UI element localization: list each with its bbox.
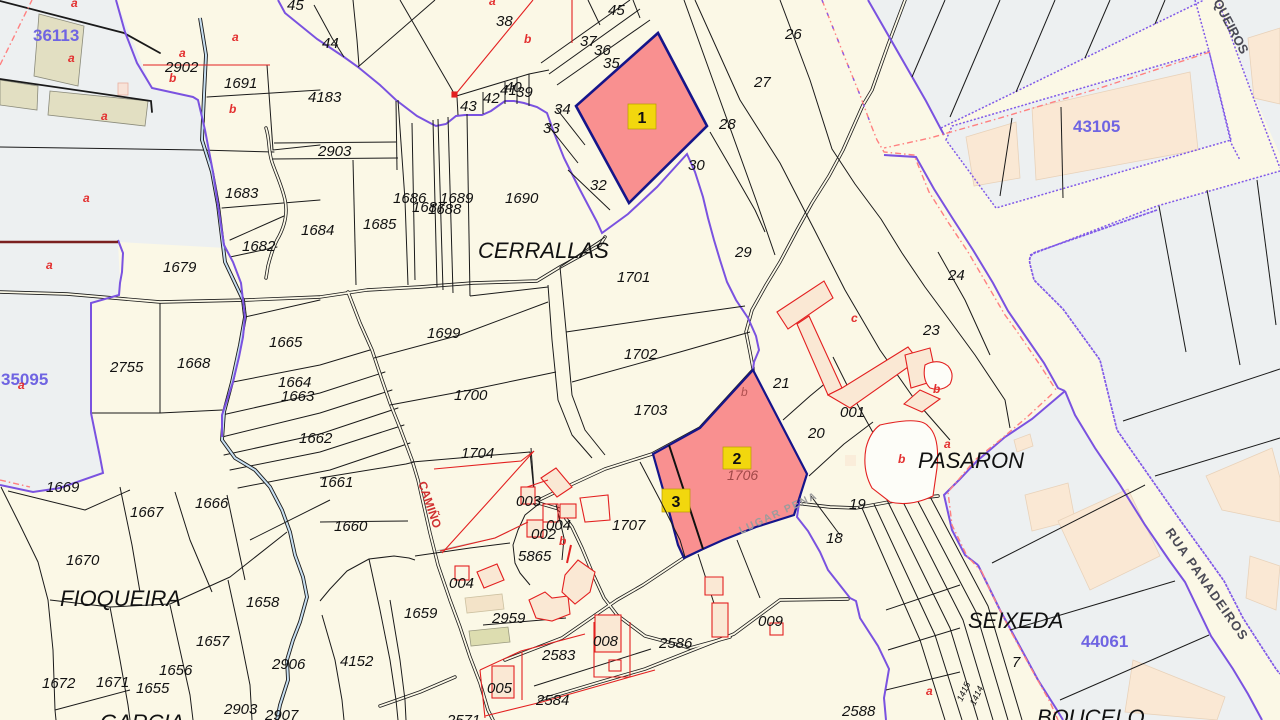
svg-text:36113: 36113 [33,26,79,45]
svg-text:2755: 2755 [109,359,144,376]
svg-text:45: 45 [608,2,625,19]
svg-text:BOUCELO: BOUCELO [1037,705,1145,720]
svg-text:1: 1 [638,110,647,127]
svg-text:002: 002 [531,526,557,543]
svg-text:FIOQUEIRA: FIOQUEIRA [60,586,181,611]
svg-text:4152: 4152 [340,653,374,670]
svg-text:43105: 43105 [1073,117,1120,136]
svg-text:24: 24 [947,267,965,284]
svg-text:5865: 5865 [518,548,552,565]
svg-text:1659: 1659 [404,605,438,622]
svg-text:b: b [933,382,940,396]
svg-text:1657: 1657 [196,633,230,650]
svg-text:29: 29 [734,244,752,261]
svg-text:2584: 2584 [535,692,569,709]
svg-text:b: b [169,71,176,85]
svg-text:1662: 1662 [299,430,333,447]
svg-text:1701: 1701 [617,269,650,286]
svg-text:35: 35 [603,55,620,72]
svg-text:1683: 1683 [225,185,259,202]
svg-text:1685: 1685 [363,216,397,233]
svg-text:45: 45 [287,0,304,14]
svg-text:1669: 1669 [46,479,80,496]
svg-text:008: 008 [593,633,619,650]
svg-text:a: a [101,109,108,123]
svg-text:32: 32 [590,177,607,194]
svg-text:a: a [489,0,496,8]
svg-text:44: 44 [322,35,339,52]
svg-text:1691: 1691 [224,75,257,92]
svg-text:1684: 1684 [301,222,334,239]
svg-text:b: b [229,102,236,116]
svg-text:1656: 1656 [159,662,193,679]
svg-text:1699: 1699 [427,325,461,342]
svg-text:SEIXEDA: SEIXEDA [968,608,1063,633]
svg-text:44061: 44061 [1081,632,1128,651]
svg-text:1700: 1700 [454,387,488,404]
svg-text:a: a [71,0,78,10]
svg-text:38: 38 [496,13,513,30]
svg-text:21: 21 [772,375,790,392]
svg-text:28: 28 [718,116,736,133]
svg-text:a: a [18,378,25,392]
svg-text:42: 42 [483,90,500,107]
svg-text:27: 27 [753,74,771,91]
svg-text:1658: 1658 [246,594,280,611]
svg-text:1706: 1706 [727,467,758,483]
svg-text:20: 20 [807,425,825,442]
svg-text:3: 3 [672,494,681,511]
svg-text:b: b [559,534,566,548]
svg-text:33: 33 [543,120,560,137]
svg-text:2: 2 [733,451,742,468]
svg-text:1663: 1663 [281,388,315,405]
svg-text:PASARON: PASARON [918,448,1024,473]
svg-text:1672: 1672 [42,675,76,692]
svg-text:2903: 2903 [317,143,352,160]
svg-text:7: 7 [1012,654,1021,671]
svg-text:1702: 1702 [624,346,658,363]
svg-text:2571: 2571 [446,712,480,720]
svg-text:18: 18 [826,530,843,547]
svg-text:4183: 4183 [308,89,342,106]
svg-text:19: 19 [849,496,866,513]
svg-text:005: 005 [487,680,513,697]
svg-text:004: 004 [449,575,474,592]
svg-text:1667: 1667 [130,504,164,521]
svg-text:GARCIA: GARCIA [100,710,184,720]
svg-text:26: 26 [784,26,802,43]
svg-text:1689: 1689 [440,190,474,207]
svg-text:1703: 1703 [634,402,668,419]
svg-text:1660: 1660 [334,518,368,535]
svg-text:003: 003 [516,493,542,510]
svg-text:39: 39 [516,84,533,101]
svg-text:1668: 1668 [177,355,211,372]
svg-text:001: 001 [840,404,865,421]
svg-text:a: a [68,51,75,65]
svg-text:1679: 1679 [163,259,197,276]
svg-text:2583: 2583 [541,647,576,664]
svg-text:2959: 2959 [491,610,526,627]
svg-text:b: b [524,32,531,46]
svg-text:1682: 1682 [242,238,276,255]
svg-text:a: a [46,258,53,272]
svg-text:2588: 2588 [841,703,876,720]
svg-text:1666: 1666 [195,495,229,512]
svg-text:a: a [944,437,951,451]
svg-text:1704: 1704 [461,445,494,462]
svg-text:2586: 2586 [658,635,693,652]
svg-text:2907: 2907 [264,707,299,720]
svg-text:009: 009 [758,613,784,630]
svg-text:a: a [83,191,90,205]
svg-text:1665: 1665 [269,334,303,351]
svg-text:a: a [926,684,933,698]
svg-text:43: 43 [460,98,477,115]
svg-text:30: 30 [688,157,705,174]
svg-text:23: 23 [922,322,940,339]
svg-text:2906: 2906 [271,656,306,673]
svg-text:1661: 1661 [320,474,353,491]
svg-text:2903: 2903 [223,701,258,718]
svg-text:1690: 1690 [505,190,539,207]
svg-text:a: a [232,30,239,44]
svg-text:b: b [741,385,748,399]
svg-text:a: a [179,46,186,60]
svg-text:1671: 1671 [96,674,129,691]
svg-text:c: c [851,311,858,325]
svg-text:1655: 1655 [136,680,170,697]
svg-text:34: 34 [554,101,571,118]
svg-text:1707: 1707 [612,517,646,534]
svg-text:CERRALLAS: CERRALLAS [478,238,609,263]
svg-text:b: b [898,452,905,466]
svg-text:1670: 1670 [66,552,100,569]
